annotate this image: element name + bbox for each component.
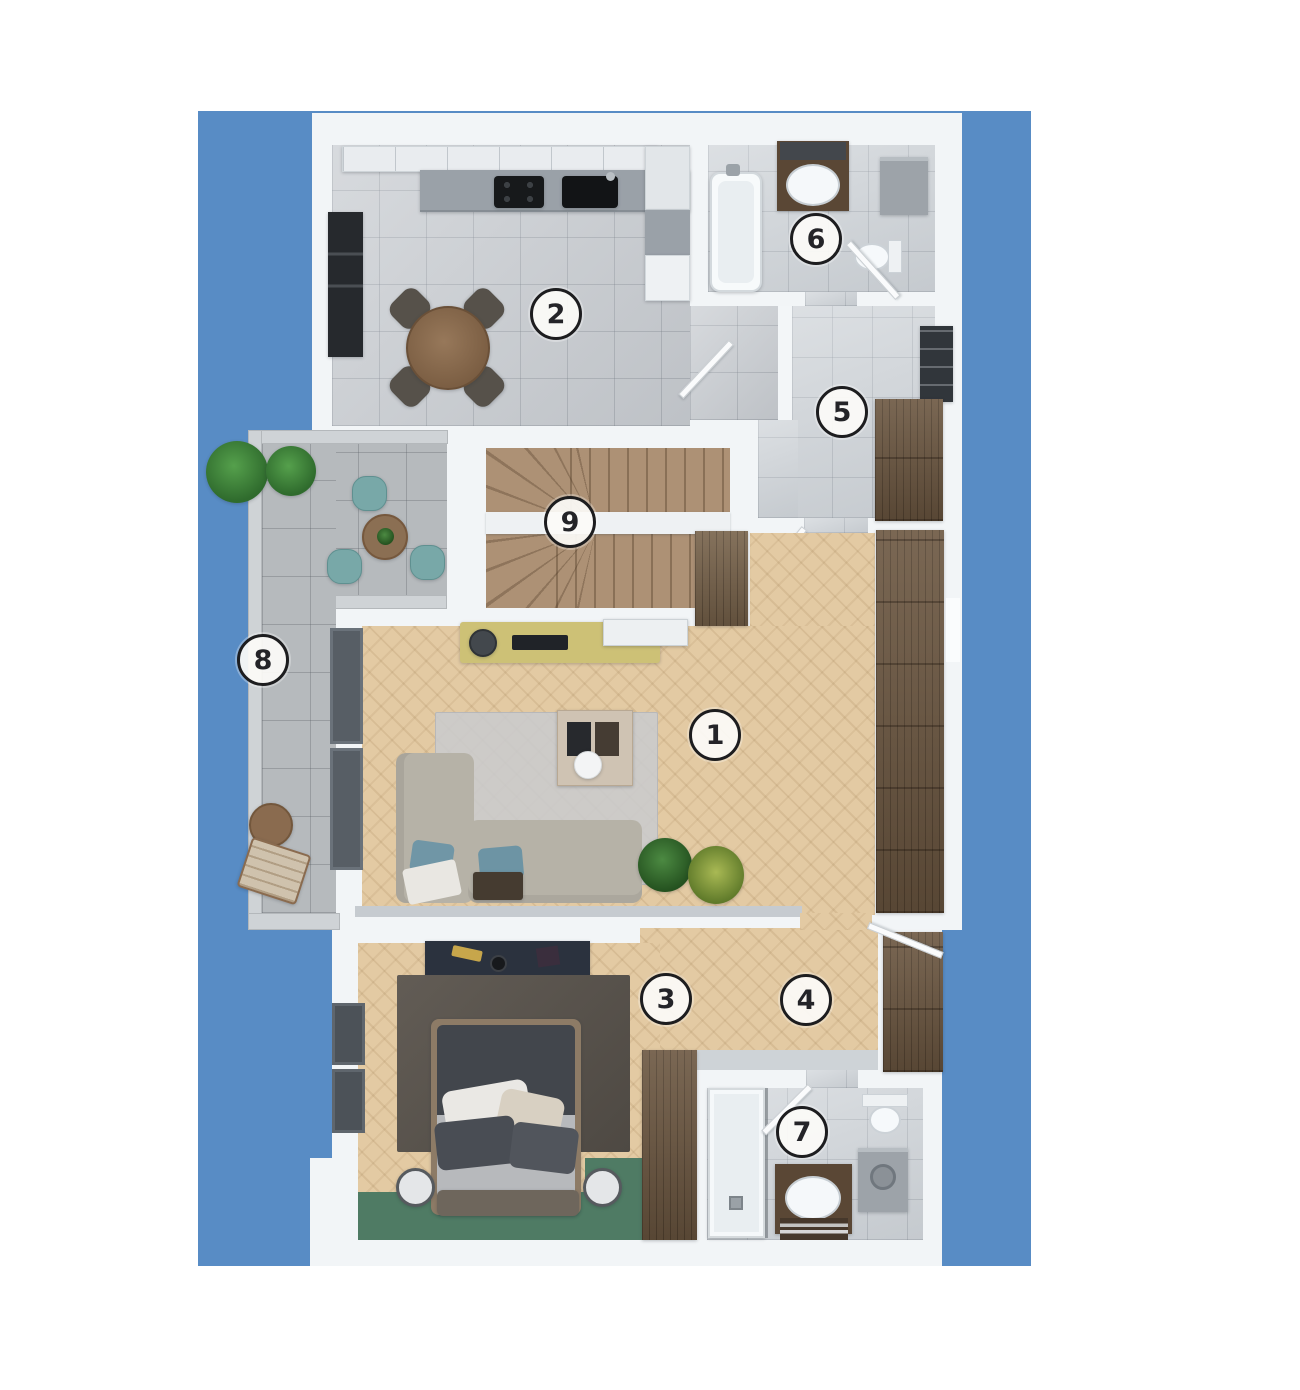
room-number-label: 4 [797, 985, 816, 1016]
room-number-label: 5 [833, 397, 852, 428]
shower-drain-icon [729, 1196, 743, 1210]
balcony-plant-small-icon [266, 446, 316, 496]
balcony-railing-bottom [248, 913, 340, 930]
washing-machine-main [880, 157, 928, 215]
bedroom-desk [425, 941, 590, 977]
room-number-label: 9 [561, 507, 580, 538]
kitchen-base-cabinet [645, 255, 690, 301]
floor-plan-render: 1 2 3 4 5 6 7 8 9 [0, 0, 1300, 1390]
wall-shadow-living-south [355, 906, 802, 917]
laptop [512, 635, 568, 650]
room-badge-walk-in-closet: 4 [780, 974, 832, 1026]
room-badge-balcony: 8 [237, 634, 289, 686]
desk-item-card [536, 946, 560, 968]
coffee-tray-table [473, 872, 523, 900]
nightstand [396, 1168, 435, 1207]
room-number-label: 3 [657, 984, 676, 1015]
toilet-second-bowl [869, 1106, 901, 1134]
understair-cabinet [695, 531, 748, 626]
nightstand [583, 1168, 622, 1207]
sideboard-white [603, 619, 688, 646]
living-plant-icon [638, 838, 692, 892]
room-badge-hallway: 5 [816, 386, 868, 438]
living-wardrobe [876, 530, 944, 913]
doorway-hall-living [804, 518, 868, 533]
stair-landing [486, 512, 730, 534]
towel-shelf [780, 1218, 848, 1240]
doorway-bathroom-main [805, 292, 857, 306]
terrace-chair [352, 476, 387, 511]
bed-pillow-dark [434, 1115, 519, 1171]
vanity-mirror [780, 142, 846, 160]
room-number-label: 6 [807, 224, 826, 255]
doorway-bathroom-second [806, 1070, 858, 1088]
terrace-edge-south [335, 595, 447, 609]
room-badge-bathroom-main: 6 [790, 213, 842, 265]
room-badge-staircase: 9 [544, 496, 596, 548]
balcony-plant-icon [206, 441, 268, 503]
room-number-label: 8 [254, 645, 273, 676]
living-floor-upper [750, 533, 875, 626]
kitchen-tall-cabinet [645, 146, 690, 210]
bed-bench [437, 1190, 579, 1216]
shelf-cell-brown [595, 722, 619, 756]
desk-stool [469, 629, 497, 657]
doorway-living-closet [800, 913, 872, 930]
bedroom-window [332, 1003, 365, 1065]
bed-pillow-dark [508, 1121, 579, 1175]
room-number-label: 1 [706, 720, 725, 751]
window-niche [946, 598, 960, 662]
shower-tray-inner [714, 1094, 759, 1232]
bathtub-faucet-icon [726, 164, 740, 176]
terrace-chair [410, 545, 445, 580]
room-number-label: 7 [793, 1117, 812, 1148]
fridge [328, 212, 363, 357]
desk-headphones-icon [490, 955, 507, 972]
balcony-railing-top [248, 430, 448, 444]
room-badge-bedroom: 3 [640, 973, 692, 1025]
hallway-floor-west [758, 420, 798, 518]
living-palm-icon [688, 846, 744, 904]
terrace-table-plant-icon [377, 528, 394, 545]
sink-faucet-icon [606, 172, 615, 181]
hallway-wardrobe [875, 399, 943, 521]
kitchen-floor-vestibule [690, 306, 778, 420]
toilet-main-tank [888, 240, 902, 273]
bedroom-window [332, 1069, 365, 1133]
terrace-chair [327, 549, 362, 584]
kitchen-upper-cabinets [342, 146, 658, 172]
bathtub-inner [718, 181, 754, 283]
kitchen-counter-corner [645, 210, 690, 255]
vestibule-wall [778, 306, 792, 420]
shower-glass [765, 1088, 768, 1238]
room-badge-living-room: 1 [689, 709, 741, 761]
living-window-door [330, 628, 363, 744]
room-badge-kitchen: 2 [530, 288, 582, 340]
pouf [574, 751, 602, 779]
washer-door-icon [870, 1164, 896, 1190]
room-badge-bathroom-second: 7 [776, 1106, 828, 1158]
sink-second [785, 1176, 841, 1220]
living-window-door [330, 748, 363, 870]
room-number-label: 2 [547, 299, 566, 330]
cooktop [494, 176, 544, 208]
bedroom-wardrobe [642, 1050, 697, 1240]
dining-table [406, 306, 490, 390]
entry-closet [920, 326, 953, 402]
sink-main [786, 164, 840, 206]
